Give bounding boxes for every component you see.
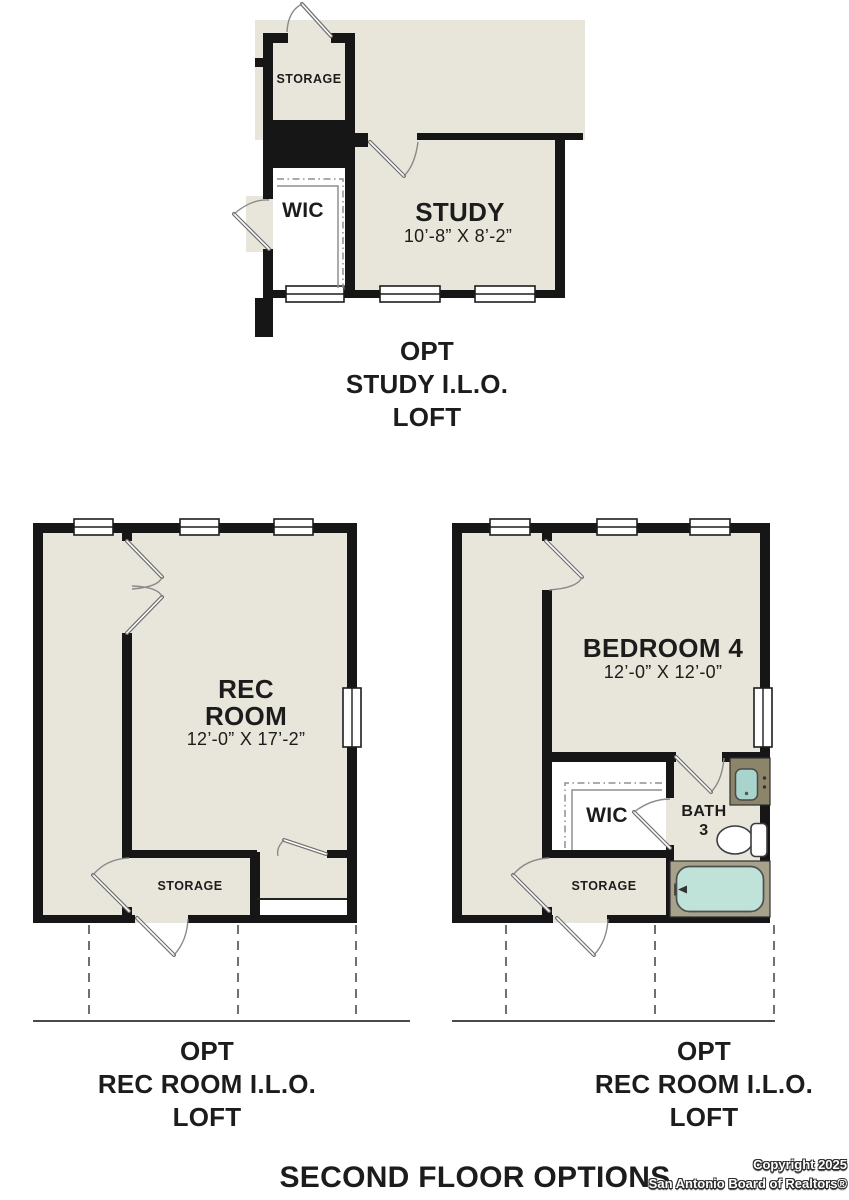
- stair-projection-lines: [452, 925, 775, 1021]
- bath3-label-line1: BATH: [681, 804, 726, 820]
- floor-plan-drawing: [0, 0, 849, 1200]
- stair-door-swing-icon: [137, 918, 188, 955]
- plan-study-option: [234, 4, 585, 337]
- bedroom4-label: BEDROOM 4: [583, 635, 743, 661]
- sink-vanity-icon: [730, 758, 770, 805]
- study-option-caption-line3: LOFT: [393, 404, 462, 430]
- toilet-icon: [717, 824, 767, 857]
- rec-room-label-line2: ROOM: [205, 703, 287, 729]
- rec-room-floor: [33, 523, 357, 923]
- bedroom4-dimensions: 12’-0” X 12’-0”: [604, 663, 723, 681]
- stair-projection-lines: [33, 925, 410, 1021]
- rec-right-caption-line1: OPT: [677, 1038, 731, 1064]
- plan-rec-room-left: [33, 519, 410, 1021]
- page-title: SECOND FLOOR OPTIONS: [279, 1163, 670, 1193]
- study-dimensions: 10’-8” X 8’-2”: [404, 227, 512, 245]
- study-option-caption-line1: OPT: [400, 338, 454, 364]
- storage-label: STORAGE: [571, 880, 636, 893]
- copyright-line2: San Antonio Board of Realtors®: [649, 1174, 847, 1193]
- rec-left-caption-line2: REC ROOM I.L.O.: [98, 1071, 316, 1097]
- rec-room-dimensions: 12’-0” X 17’-2”: [187, 730, 306, 748]
- storage-label: STORAGE: [276, 73, 341, 86]
- open-to-below-band: [257, 898, 347, 915]
- rec-left-caption-line1: OPT: [180, 1038, 234, 1064]
- window-icon: [286, 286, 535, 302]
- bath3-label-line2: 3: [699, 823, 708, 839]
- floor-plan-page: STORAGE WIC STUDY 10’-8” X 8’-2” OPT STU…: [0, 0, 849, 1200]
- stair-door-swing-icon: [557, 918, 608, 955]
- wic-label: WIC: [586, 805, 628, 826]
- copyright-line1: Copyright 2025: [649, 1155, 847, 1174]
- study-option-caption-line2: STUDY I.L.O.: [346, 371, 508, 397]
- wic-label: WIC: [282, 200, 324, 221]
- storage-label: STORAGE: [157, 880, 222, 893]
- rec-room-label-line1: REC: [218, 676, 274, 702]
- bathtub-icon: [670, 861, 770, 917]
- rec-right-caption-line3: LOFT: [670, 1104, 739, 1130]
- copyright-notice: Copyright 2025 San Antonio Board of Real…: [649, 1155, 847, 1193]
- study-label: STUDY: [415, 199, 505, 225]
- rec-left-caption-line3: LOFT: [173, 1104, 242, 1130]
- rec-right-caption-line2: REC ROOM I.L.O.: [595, 1071, 813, 1097]
- plan-rec-room-right: [452, 519, 775, 1021]
